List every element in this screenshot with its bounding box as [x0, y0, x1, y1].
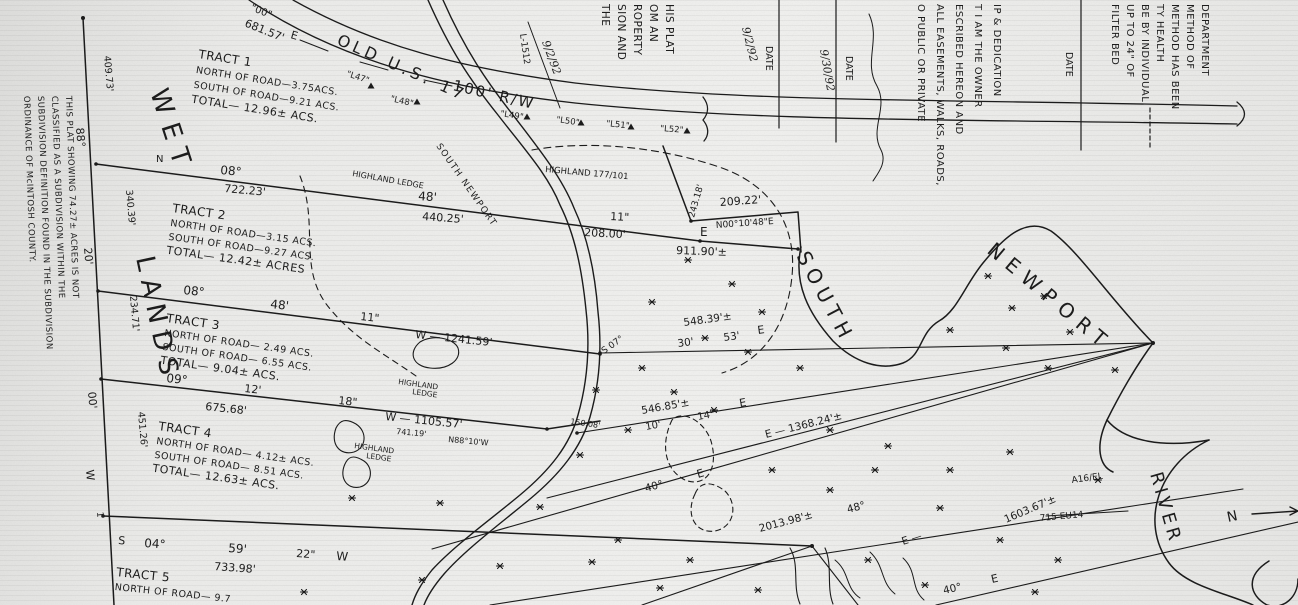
bearing-08: 08° — [220, 163, 242, 179]
health-line-3: METHOD HAS BEEN — [1169, 4, 1180, 110]
dedication-line-2: T I AM THE OWNER — [972, 3, 983, 108]
bearing-53: 53' — [723, 330, 741, 344]
dedication-line-5: O PUBLIC OR PRIVATE — [915, 4, 926, 122]
health-line-5: BE BY INDIVIDUAL — [1139, 4, 1150, 102]
date-label-1: DATE — [763, 46, 774, 71]
bearing-s: S — [118, 534, 126, 547]
date-label-3: DATE — [1063, 52, 1074, 77]
dist-911-90: 911.90'± — [676, 244, 727, 259]
health-line-2: METHOD OF — [1184, 4, 1195, 69]
bdy-20: 20' — [81, 247, 95, 265]
health-line-1: DEPARTMENT — [1199, 4, 1210, 77]
bearing-n: N — [156, 154, 163, 165]
dedication-line-1: IP & DEDICATION — [991, 4, 1002, 97]
bearing-04: 04° — [144, 536, 166, 551]
dedication-line-3: ESCRIBED HEREON AND — [953, 4, 964, 135]
bearing-48b: 48' — [270, 297, 290, 313]
date-label-2: DATE — [843, 56, 854, 81]
bdy-w: W — [83, 469, 97, 481]
bearing-08b: 08° — [183, 283, 206, 299]
bearing-11b: 11" — [360, 310, 380, 325]
health-line-4: TY HEALTH — [1154, 3, 1165, 62]
surveyor_fragment-line-3: ROPERTY — [631, 4, 643, 55]
surveyor_fragment-line-4: SION AND — [615, 4, 627, 60]
bearing-12: 12' — [244, 382, 262, 397]
health-line-6: UP TO 24" OF — [1124, 4, 1135, 78]
bearing-18: 18" — [338, 394, 358, 409]
dedication-line-4: ALL EASEMENTS, WALKS, ROADS, — [934, 4, 945, 186]
bearing-48: 48' — [418, 189, 438, 204]
bearing-w: W — [336, 549, 349, 564]
health-line-7: FILTER BED — [1109, 4, 1120, 65]
bdy-1: 1 — [94, 511, 104, 518]
station-l52: "L52" — [660, 124, 684, 136]
bearing-59: 59' — [228, 541, 248, 556]
plat-drawing: "00"681.57'EOLD U.S. 17100' R/W"L47""L48… — [0, 0, 1298, 605]
dist-208-00: 208.00' — [584, 226, 626, 241]
bearing-e1: E — [700, 225, 708, 239]
surveyor_fragment-line-1: HIS PLAT — [663, 4, 675, 54]
bearing-22: 22" — [296, 547, 316, 561]
surveyor_fragment-line-5: THE — [599, 3, 611, 26]
surveyor_fragment-line-2: OM AN — [647, 4, 659, 42]
bearing-11: 11" — [610, 210, 630, 224]
bdy-00: 00' — [85, 391, 99, 409]
bearing-30: 30' — [677, 336, 695, 350]
scanned-plat-page: "00"681.57'EOLD U.S. 17100' R/W"L47""L48… — [0, 0, 1298, 605]
